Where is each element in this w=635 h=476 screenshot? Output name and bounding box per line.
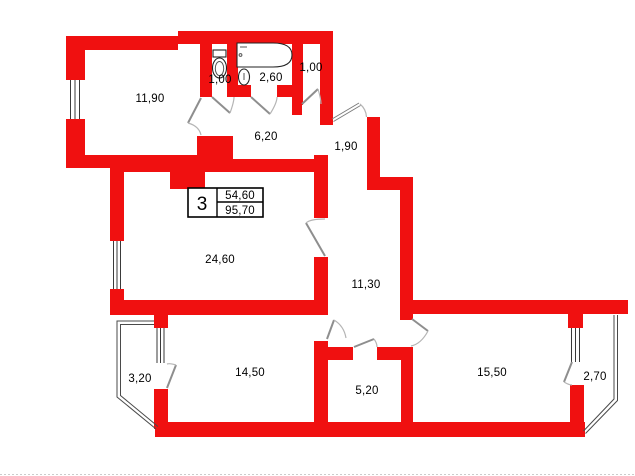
wall-living-top — [110, 159, 328, 172]
room-area-label: 2,60 — [259, 72, 282, 84]
window-living-room — [114, 241, 121, 289]
wall-room-right-pillar-top — [568, 314, 583, 328]
bathtub-icon — [237, 43, 292, 67]
door-entry — [332, 103, 367, 122]
apartment-number: 3 — [197, 194, 208, 215]
room-area-label: 11,30 — [352, 279, 381, 291]
door-room-right — [411, 319, 428, 346]
wall-top-right — [178, 31, 333, 44]
door-room-right-balcony — [564, 362, 572, 385]
wall-wc-bottom-a — [206, 85, 212, 97]
room-area-label: 3,20 — [128, 373, 151, 385]
wall-closet-bottom-a — [292, 103, 302, 115]
door-living-room — [306, 219, 325, 256]
room-area-label: 6,20 — [254, 131, 277, 143]
wall-bottom — [155, 422, 585, 437]
wall-closet-right — [320, 31, 333, 125]
wall-living-bottom — [110, 300, 328, 315]
room-area-label: 1,90 — [334, 141, 357, 153]
wall-bedroom-pillar-top — [154, 315, 168, 328]
wall-wc-bottom-b — [234, 85, 251, 97]
room-area-label: 11,90 — [136, 93, 165, 105]
wall-left-pillar-top — [66, 36, 85, 80]
wall-kitchen-top-a — [314, 347, 353, 360]
door-wc — [212, 97, 234, 113]
floor-plan-drawing: 11,90 1,00 2,60 1,00 6,20 1,90 24,60 11,… — [0, 0, 635, 476]
floor-plan: 11,90 1,00 2,60 1,00 6,20 1,90 24,60 11,… — [0, 0, 635, 476]
wall-corridor-right — [400, 183, 413, 320]
apartment-info-box: 3 54,60 95,70 — [188, 188, 263, 217]
wall-vent-block-bottom — [170, 172, 205, 189]
room-area-label: 5,20 — [355, 385, 378, 397]
room-area-label: 1,00 — [299, 62, 322, 74]
room-area-label: 14,50 — [235, 367, 265, 379]
room-area-label: 1,00 — [208, 74, 231, 86]
room-area-label: 2,70 — [583, 371, 606, 383]
wall-bedroom-pillar-bottom — [154, 389, 168, 429]
wall-kitchen-right — [401, 347, 413, 429]
door-bedroom — [327, 320, 346, 339]
door-bedroom-balcony — [167, 364, 176, 388]
room-area-label: 24,60 — [205, 254, 235, 266]
window-room-right — [572, 328, 580, 362]
door-room-top-left — [188, 98, 201, 135]
wall-living-left — [110, 167, 124, 241]
living-area-value: 54,60 — [225, 190, 255, 202]
vent-shaft-hole — [206, 144, 225, 157]
total-area-value: 95,70 — [225, 205, 255, 217]
sink-icon — [239, 69, 250, 85]
window-bedroom — [157, 328, 164, 363]
door-closet — [302, 89, 321, 104]
wall-main-vertical-a — [314, 155, 328, 218]
room-area-label: 15,50 — [477, 367, 507, 379]
wall-room-right-top — [405, 300, 628, 314]
balconies — [117, 315, 618, 434]
window-room-top-left — [71, 80, 80, 119]
room-labels: 11,90 1,00 2,60 1,00 6,20 1,90 24,60 11,… — [128, 62, 606, 397]
wall-entry-right — [367, 117, 380, 183]
door-bathroom — [251, 97, 277, 114]
door-kitchen — [354, 339, 377, 347]
wall-main-vertical-b — [314, 257, 328, 313]
wall-bath-bottom — [277, 85, 303, 97]
